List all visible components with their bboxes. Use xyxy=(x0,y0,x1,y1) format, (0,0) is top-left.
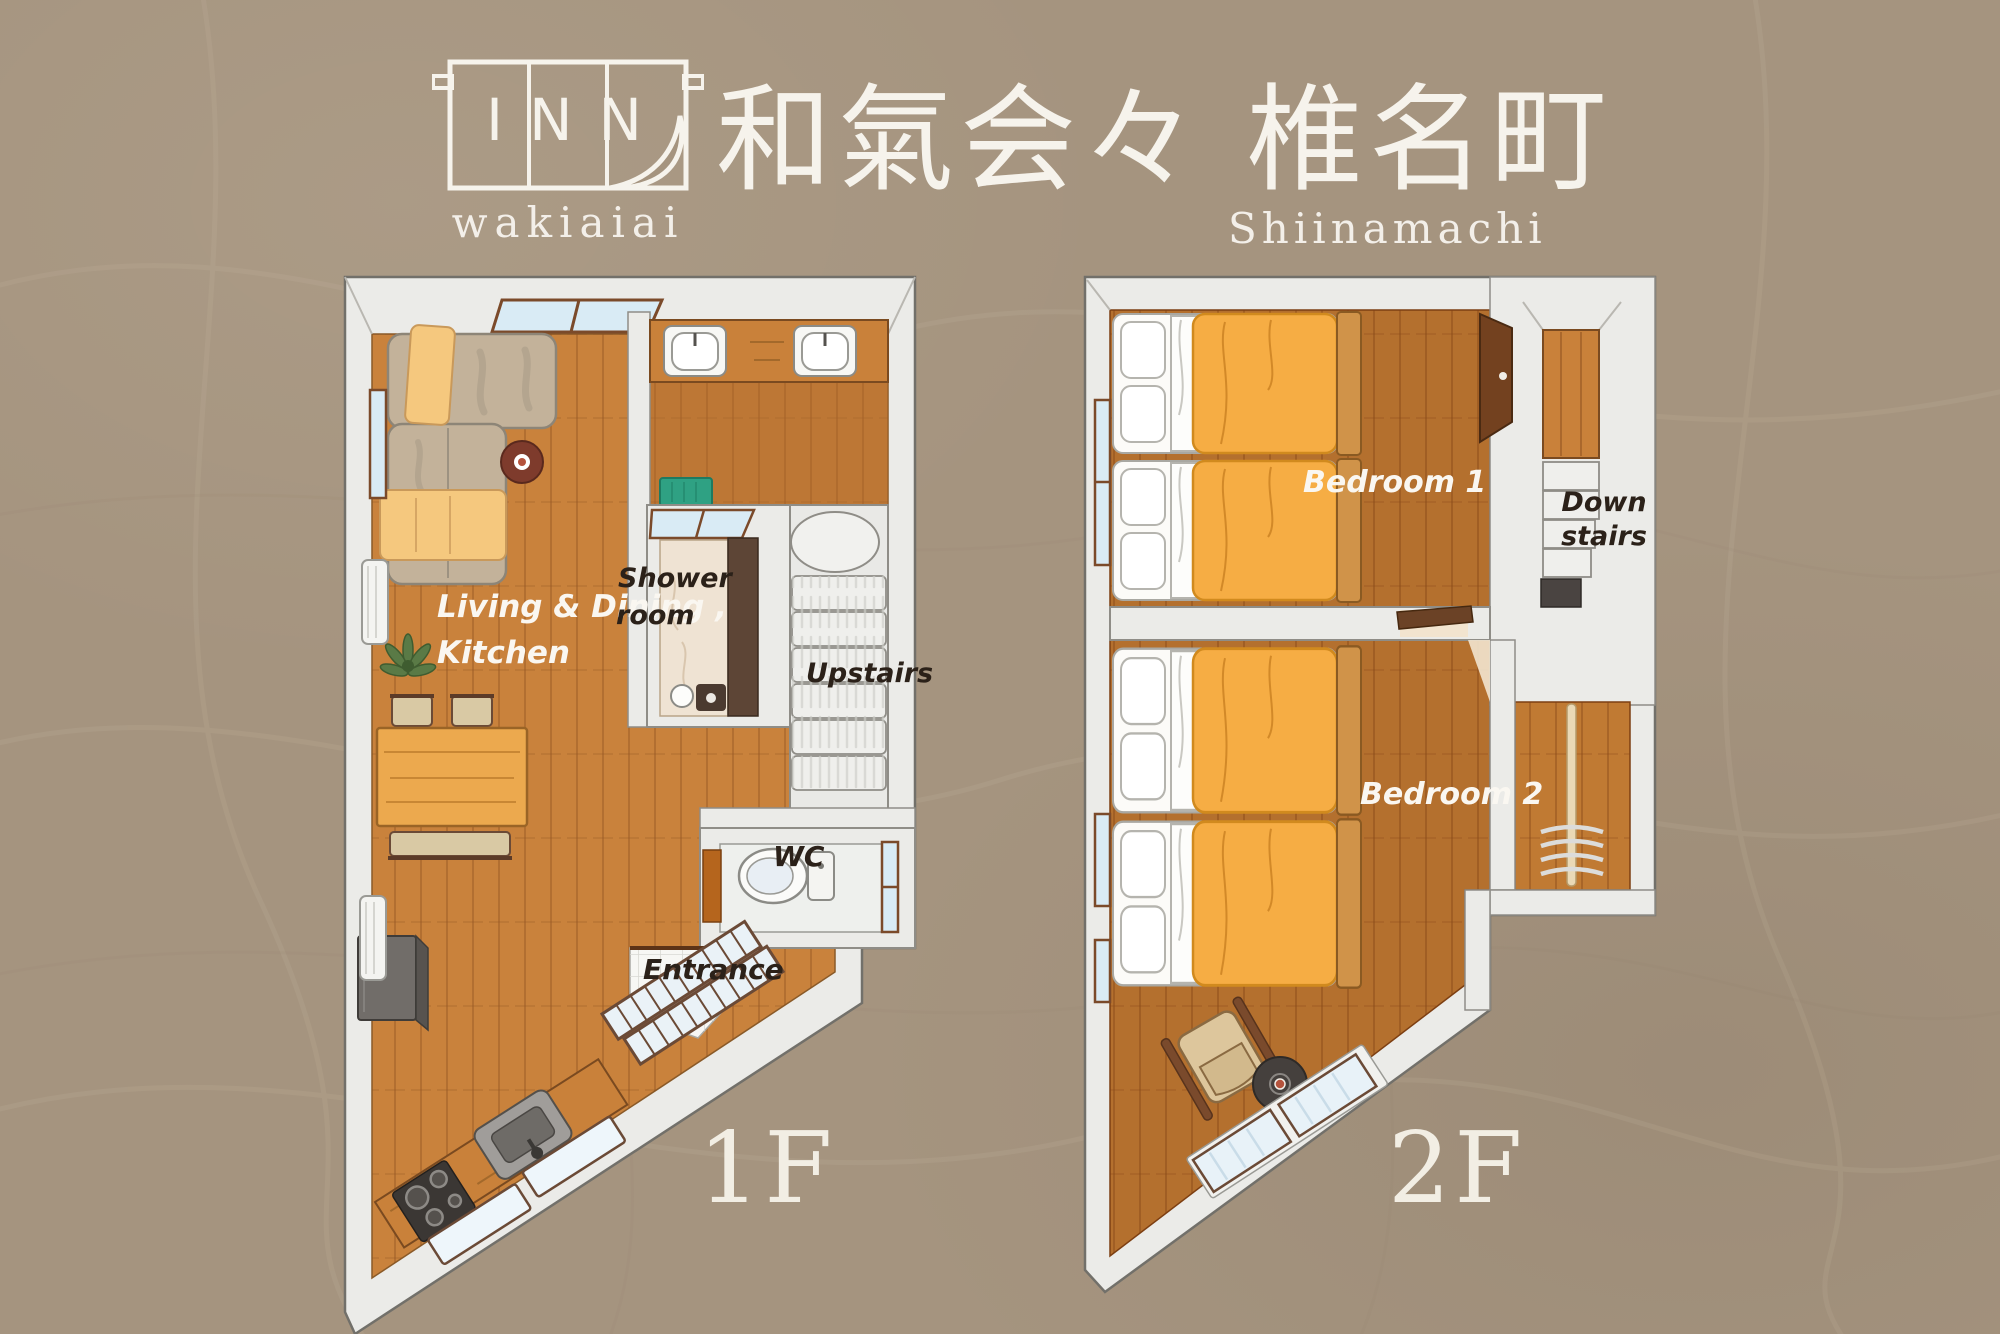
interior-wall xyxy=(1110,606,1490,640)
logo-inn-text: INN xyxy=(432,86,704,154)
window xyxy=(362,560,388,644)
label-shower: Shower xyxy=(618,563,732,594)
shower-door xyxy=(728,538,758,716)
interior-wall xyxy=(1465,890,1490,1010)
dining-table xyxy=(377,728,527,826)
label-bedroom2: Bedroom 2 xyxy=(1360,778,1543,813)
bathroom-sink xyxy=(664,326,726,376)
page: INN wakiaiai 和氣会々 椎名町 Shiinamachi xyxy=(0,0,2000,1334)
page-subtitle: Shiinamachi xyxy=(1228,204,1547,253)
shower-head-icon xyxy=(671,684,726,711)
wc-window xyxy=(882,842,898,932)
label-upstairs: Upstairs xyxy=(806,658,933,689)
stair-landing xyxy=(1543,330,1599,458)
window xyxy=(1095,940,1110,1002)
interior-wall xyxy=(1490,640,1515,890)
bed xyxy=(1113,819,1361,987)
bath-mat xyxy=(660,478,712,506)
floorplan-1f xyxy=(330,272,930,1334)
page-title: 和氣会々 椎名町 xyxy=(716,46,1613,214)
chair xyxy=(450,696,494,726)
floor-label-2f: 2F xyxy=(1388,1112,1526,1226)
label-shower-room: room xyxy=(616,600,695,631)
bedroom1-door xyxy=(1480,314,1512,442)
window xyxy=(370,390,386,498)
label-entrance: Entrance xyxy=(643,954,784,986)
floor-label-1f: 1F xyxy=(698,1112,836,1226)
label-downstairs: Down stairs xyxy=(1540,486,1668,554)
chair xyxy=(390,696,434,726)
window xyxy=(360,896,386,980)
label-downstairs-line1: Down xyxy=(1540,486,1668,520)
label-wc: WC xyxy=(773,841,824,873)
label-downstairs-line2: stairs xyxy=(1540,520,1668,554)
bench xyxy=(388,832,512,858)
logo-subtext: wakiaiai xyxy=(420,198,716,247)
wc-door xyxy=(703,850,721,922)
label-bedroom1: Bedroom 1 xyxy=(1303,466,1486,501)
interior-wall xyxy=(1490,890,1655,915)
bed xyxy=(1113,312,1361,455)
bathroom-sink xyxy=(794,326,856,376)
window xyxy=(1095,400,1110,565)
bed xyxy=(1113,646,1361,814)
side-table xyxy=(501,441,543,483)
window xyxy=(1095,814,1110,906)
label-kitchen: Kitchen xyxy=(437,636,570,672)
vanity-counter xyxy=(650,320,888,382)
